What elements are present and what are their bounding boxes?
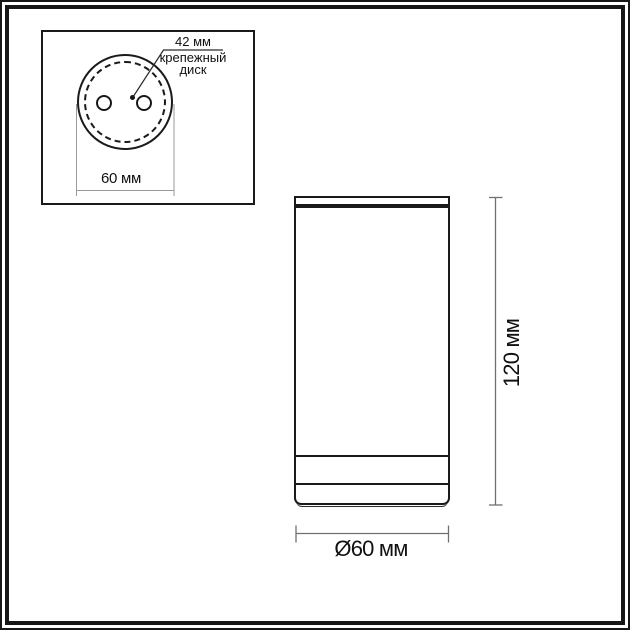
mounting-hole-right [136, 95, 152, 111]
fixture-bottom-rim [296, 501, 448, 507]
height-dimension-label: 120 мм [500, 293, 524, 413]
fixture-top-band [296, 204, 448, 208]
diameter-dimension-label: Ø60 мм [306, 536, 436, 562]
fixture-bottom-line-upper [296, 455, 448, 457]
disk-center-dot [130, 95, 135, 100]
mounting-hole-left [96, 95, 112, 111]
callout-value-label: 42 мм [163, 34, 223, 49]
callout-name-line2: диск [149, 64, 237, 76]
inset-width-label: 60 мм [81, 170, 161, 187]
fixture-bottom-line-lower [296, 483, 448, 485]
callout-name-label: крепежный диск [149, 52, 237, 76]
fixture-side-view [294, 196, 450, 505]
